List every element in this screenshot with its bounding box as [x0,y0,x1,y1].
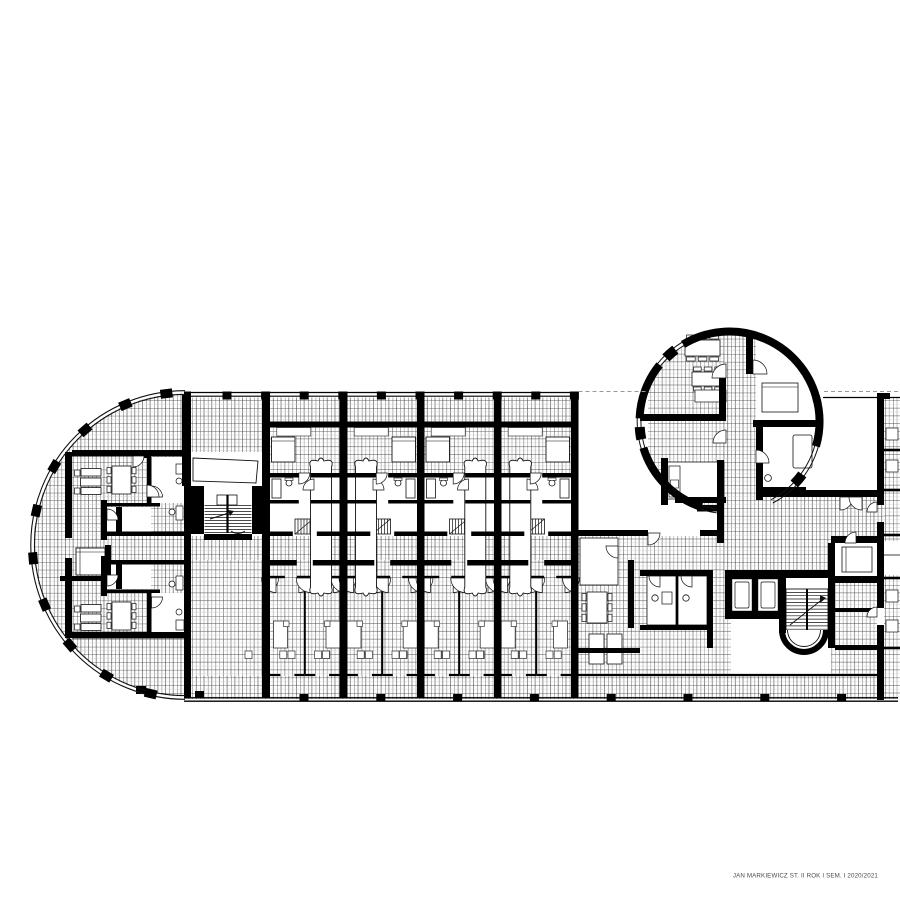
svg-text:JAN MARKIEWICZ ST. II ROK I SE: JAN MARKIEWICZ ST. II ROK I SEM. I 2020/… [733,873,879,880]
